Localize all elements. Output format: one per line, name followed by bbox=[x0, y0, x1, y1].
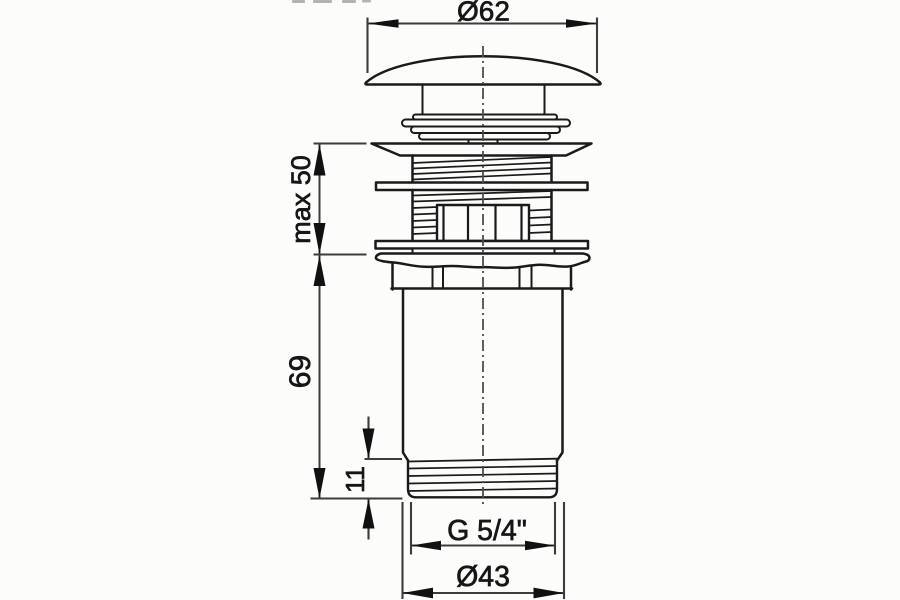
svg-text:11: 11 bbox=[340, 466, 370, 493]
svg-text:max 50: max 50 bbox=[286, 155, 316, 244]
svg-text:Ø62: Ø62 bbox=[457, 0, 510, 27]
svg-text:69: 69 bbox=[284, 355, 317, 388]
svg-text:G 5/4": G 5/4" bbox=[447, 515, 527, 547]
svg-text:Ø43: Ø43 bbox=[456, 561, 510, 593]
